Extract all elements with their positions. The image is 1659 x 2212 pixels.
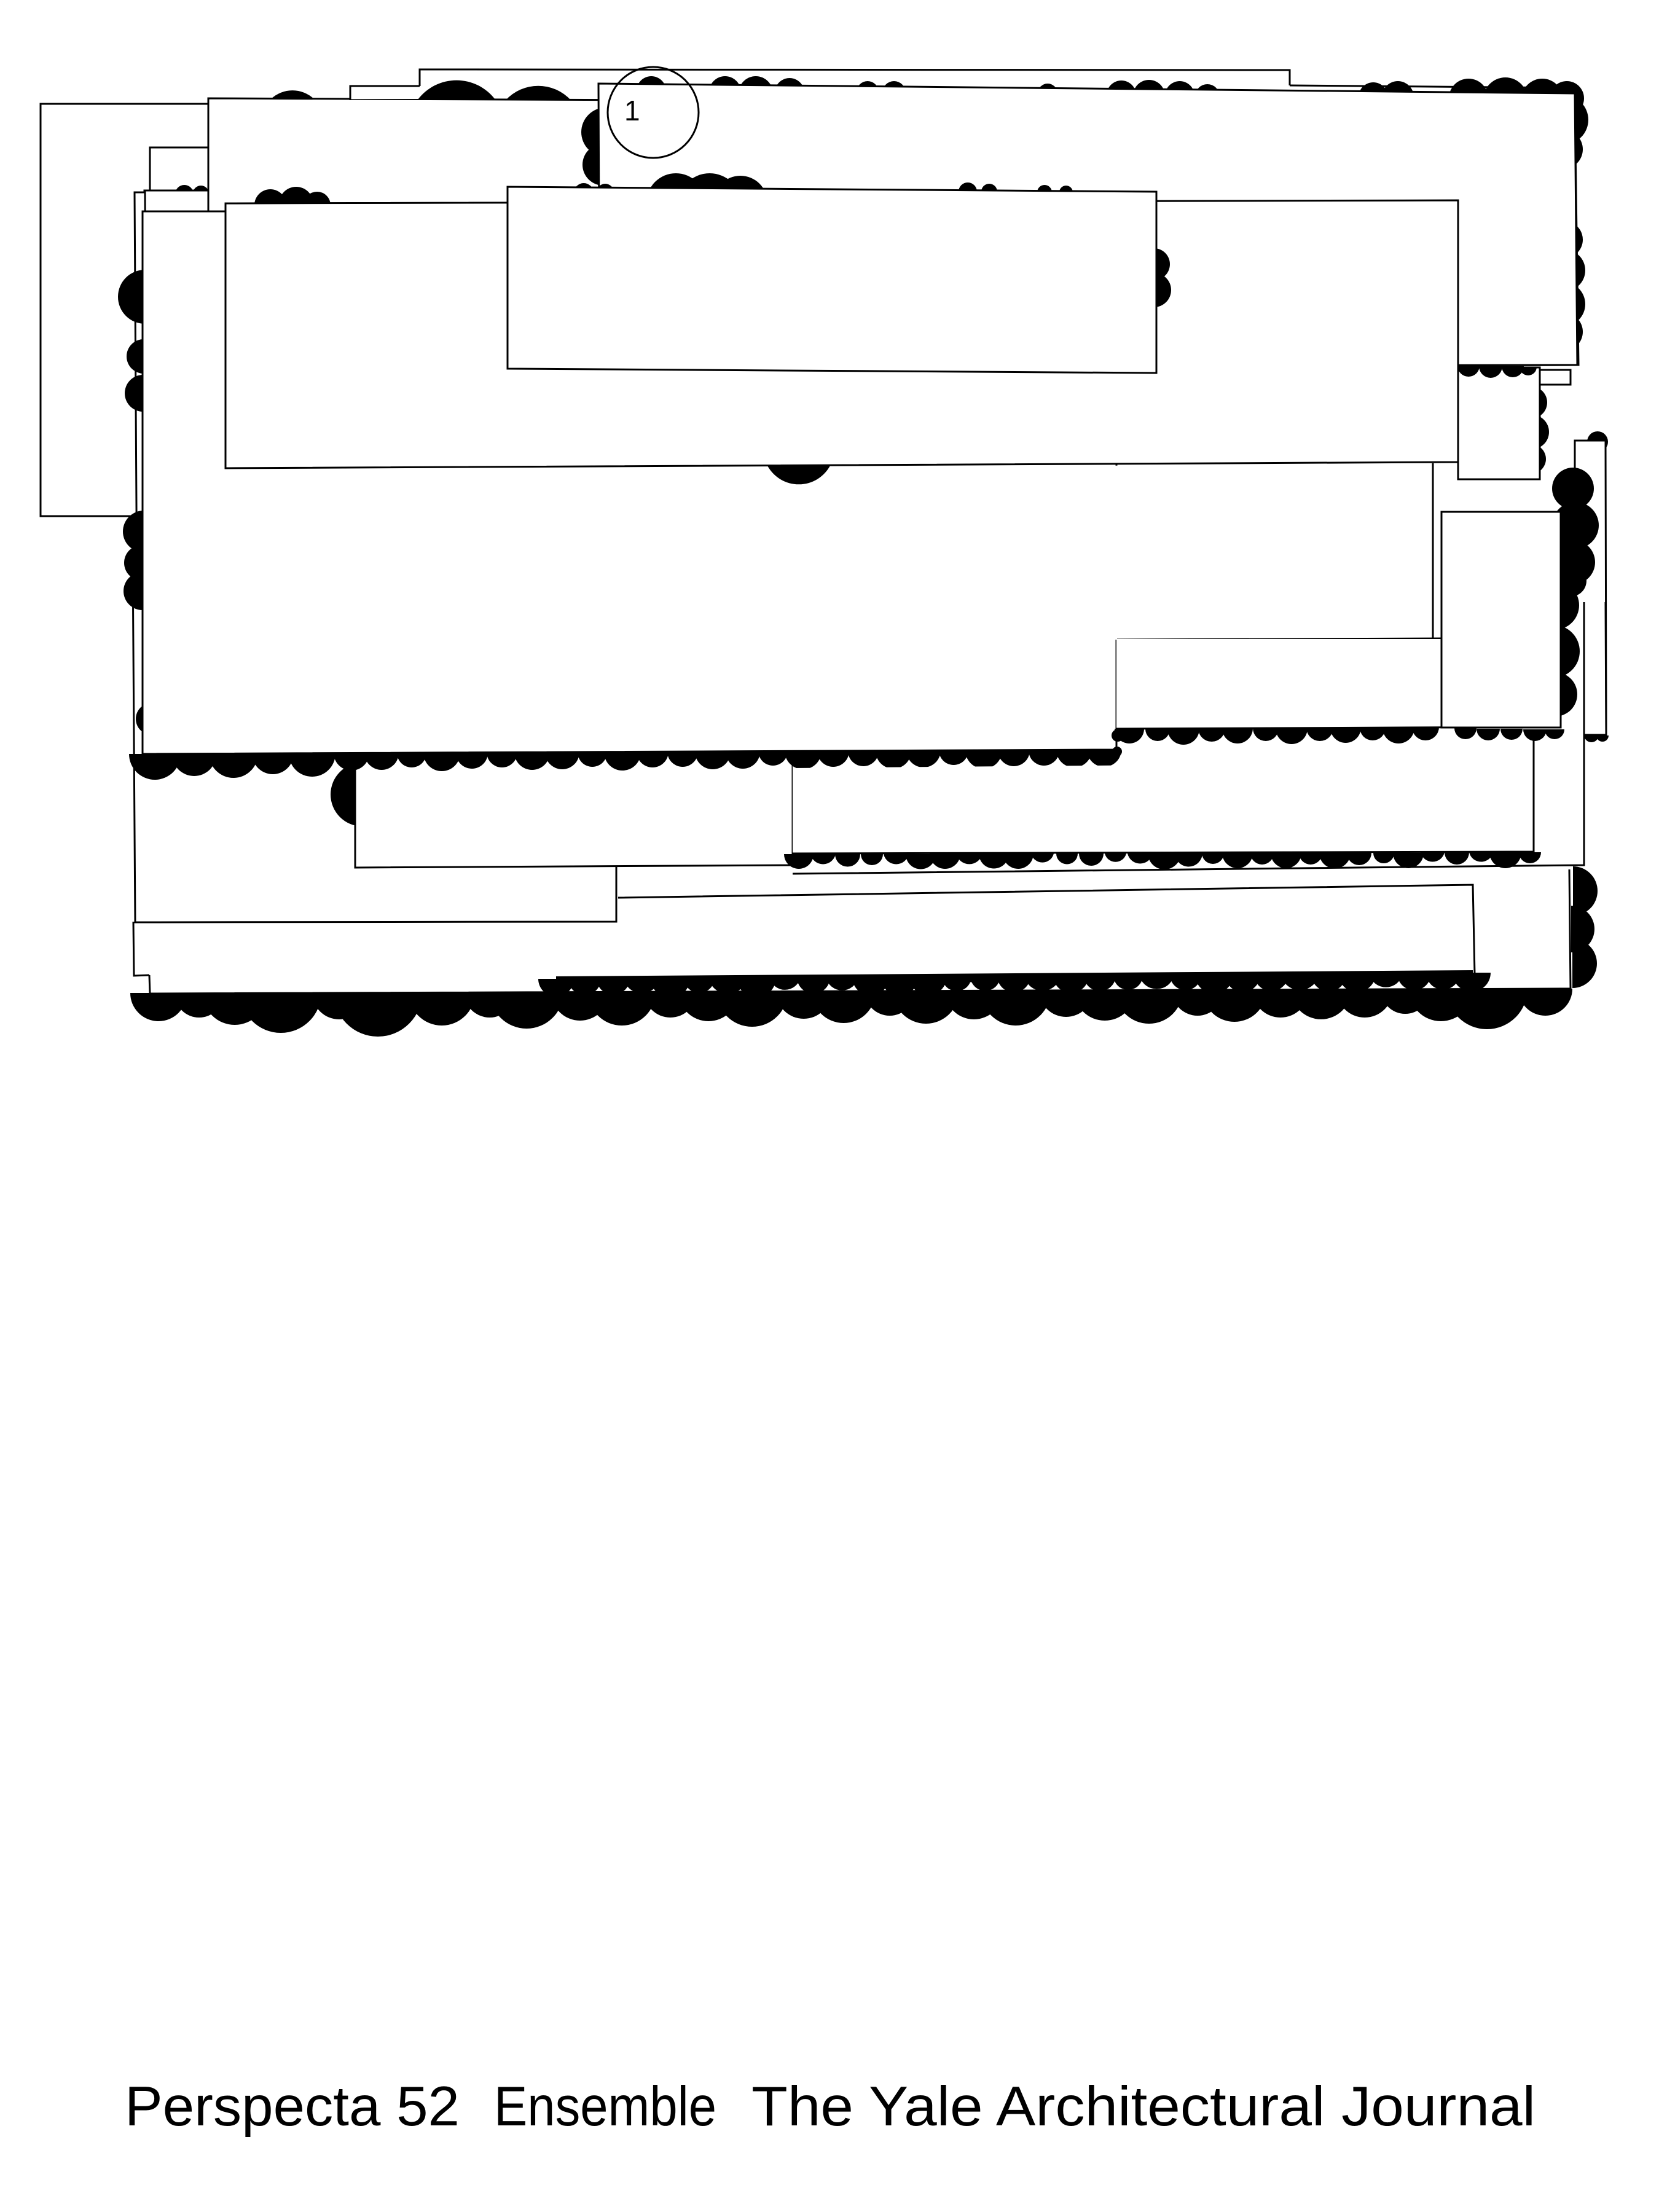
svg-text:Perspecta 52EnsembleThe Yale A: Perspecta 52EnsembleThe Yale Architectur… [125, 2076, 1535, 2138]
svg-text:1: 1 [624, 95, 640, 127]
